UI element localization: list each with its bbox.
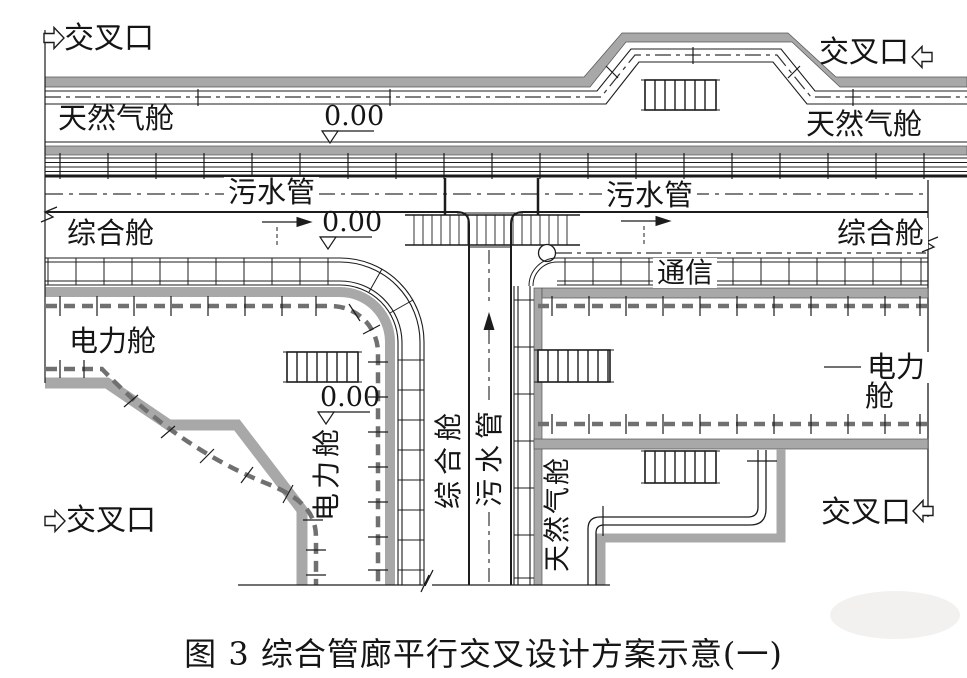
sewage-label-vertical: 污水管 <box>475 401 505 511</box>
gas-label-left: 天然气舱 <box>58 104 174 133</box>
stair-box-power-right <box>534 350 614 382</box>
flow-arrow-right-icon <box>656 217 670 226</box>
stair-box-gas-south <box>641 451 720 483</box>
junction-arrow-top-left-icon <box>44 28 64 49</box>
break-symbol-bottom <box>421 570 433 592</box>
break-symbol-left <box>41 207 57 222</box>
flow-arrow-left-icon <box>297 218 311 227</box>
utility-label-right: 综合舱 <box>833 218 928 249</box>
gas-label-right: 天然气舱 <box>806 110 922 139</box>
elevation-label-mid: 0.00 <box>322 209 382 236</box>
comm-label: 通信 <box>653 258 717 288</box>
gas-label-vertical: 天然气舱 <box>545 456 572 572</box>
junction-hatch <box>405 215 580 247</box>
power-label-right-line2: 舱 <box>861 381 898 412</box>
junction-label-bottom-left: 交叉口 <box>66 506 156 536</box>
junction-label-top-right: 交叉口 <box>819 38 909 68</box>
utility-tunnel-diagram: 交叉口 交叉口 交叉口 交叉口 天然气舱 天然气舱 污水管 污水管 综合舱 综合… <box>0 0 967 678</box>
utility-label-vertical: 综合舱 <box>435 407 463 509</box>
junction-label-bottom-right: 交叉口 <box>821 498 911 528</box>
elevation-label-low: 0.00 <box>320 384 380 411</box>
pipe-rack-band <box>45 142 967 179</box>
sewage-label-right: 污水管 <box>602 180 697 211</box>
junction-arrow-bottom-left-icon <box>45 511 65 532</box>
sewage-band <box>45 178 928 585</box>
manhole-circle <box>539 245 556 262</box>
power-label-left: 电力舱 <box>69 327 156 356</box>
flow-arrow-up-icon <box>484 312 495 330</box>
stair-box-power-left <box>283 352 362 382</box>
power-label-vertical: 电力舱 <box>313 425 341 521</box>
figure-caption: 图 3 综合管廊平行交叉设计方案示意(一) <box>0 629 967 675</box>
stair-box-top <box>641 80 720 110</box>
sewage-label-left: 污水管 <box>224 177 319 208</box>
utility-label-left: 综合舱 <box>67 219 154 248</box>
junction-label-top-left: 交叉口 <box>64 24 154 54</box>
junction-arrow-bottom-right-icon <box>913 501 933 522</box>
junction-arrow-top-right-icon <box>912 47 932 68</box>
mid-wall <box>45 146 967 155</box>
elevation-label-top: 0.00 <box>324 103 384 130</box>
